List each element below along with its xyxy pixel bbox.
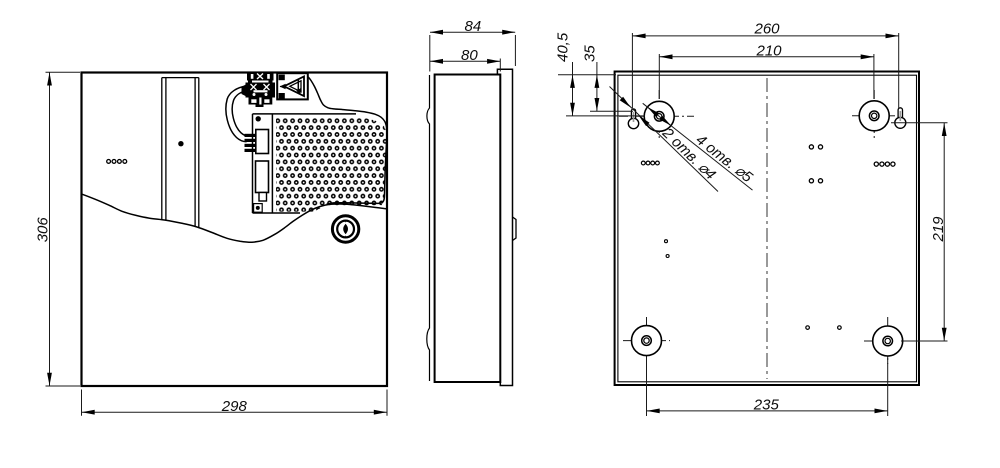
svg-text:80: 80: [461, 47, 478, 64]
svg-text:35: 35: [582, 45, 599, 62]
svg-text:306: 306: [35, 217, 52, 243]
svg-text:235: 235: [753, 397, 780, 414]
svg-text:84: 84: [465, 18, 482, 35]
svg-text:210: 210: [756, 43, 783, 60]
svg-text:298: 298: [221, 398, 248, 415]
svg-text:219: 219: [930, 216, 947, 243]
svg-text:40,5: 40,5: [555, 32, 572, 62]
svg-text:260: 260: [754, 21, 781, 38]
